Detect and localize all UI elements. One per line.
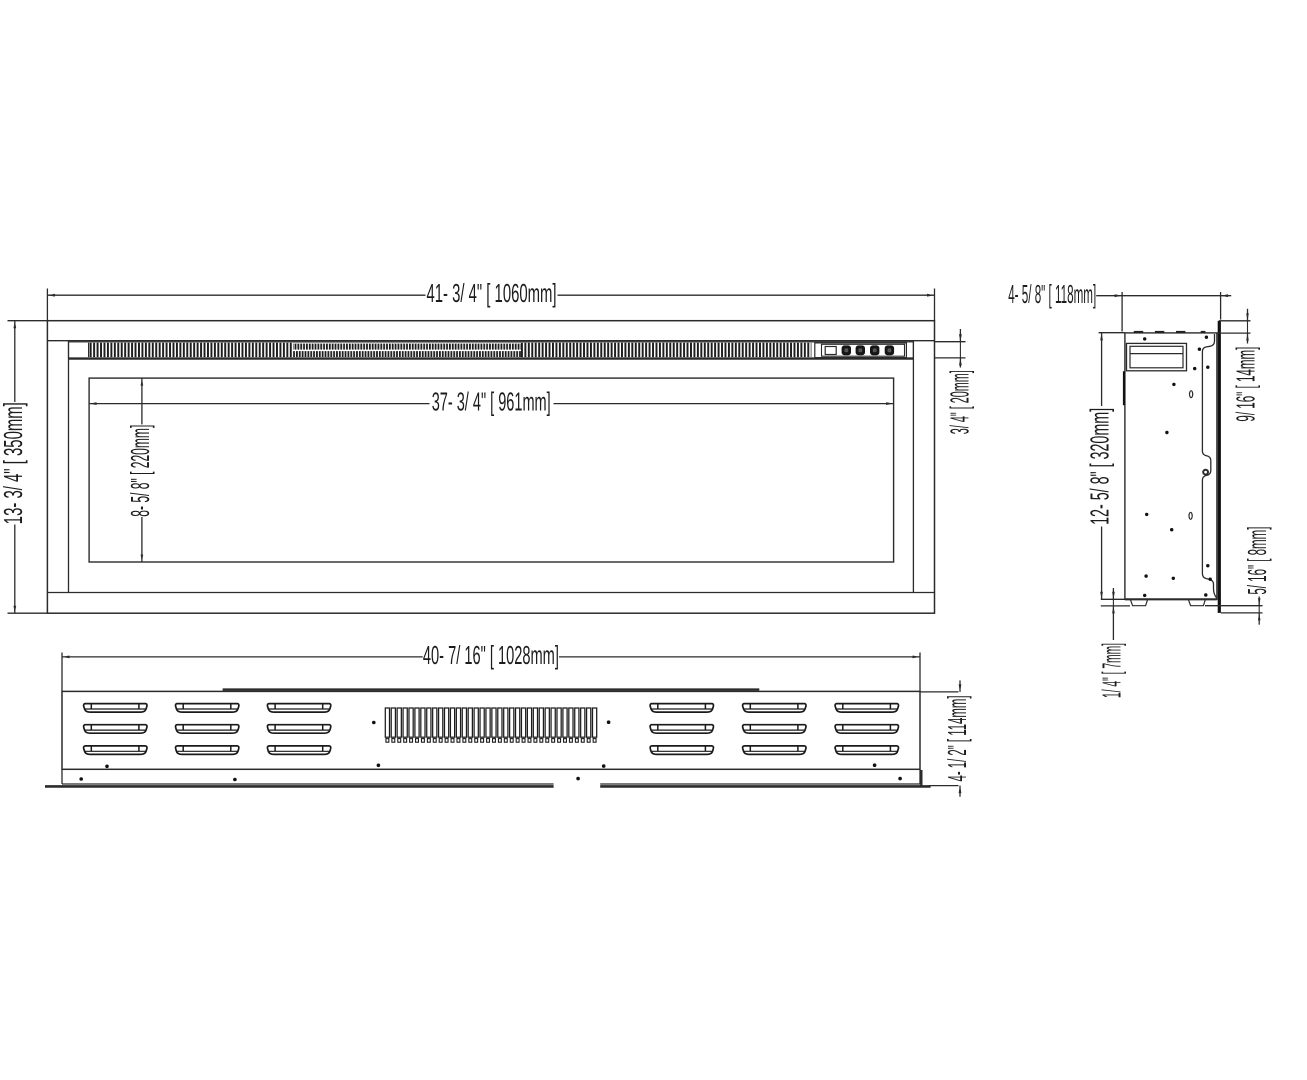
svg-text:12- 5/ 8" [ 320mm]: 12- 5/ 8" [ 320mm] (1085, 408, 1115, 525)
svg-text:1/ 4" [ 7mm]: 1/ 4" [ 7mm] (1096, 643, 1126, 698)
svg-text:8- 5/ 8" [ 220mm]: 8- 5/ 8" [ 220mm] (125, 425, 155, 517)
svg-text:3/ 4" [ 20mm]: 3/ 4" [ 20mm] (945, 370, 975, 434)
svg-text:9/ 16" [ 14mm]: 9/ 16" [ 14mm] (1231, 347, 1261, 422)
svg-text:40- 7/ 16" [ 1028mm]: 40- 7/ 16" [ 1028mm] (423, 640, 559, 670)
svg-text:37- 3/ 4" [ 961mm]: 37- 3/ 4" [ 961mm] (432, 387, 551, 417)
svg-text:4- 1/ 2" [ 114mm]: 4- 1/ 2" [ 114mm] (942, 696, 972, 782)
svg-text:5/ 16" [ 8mm]: 5/ 16" [ 8mm] (1242, 527, 1272, 595)
svg-text:4- 5/ 8" [ 118mm]: 4- 5/ 8" [ 118mm] (1008, 279, 1096, 309)
svg-text:41- 3/ 4" [ 1060mm]: 41- 3/ 4" [ 1060mm] (427, 278, 557, 308)
svg-text:13- 3/ 4" [ 350mm]: 13- 3/ 4" [ 350mm] (0, 402, 28, 524)
